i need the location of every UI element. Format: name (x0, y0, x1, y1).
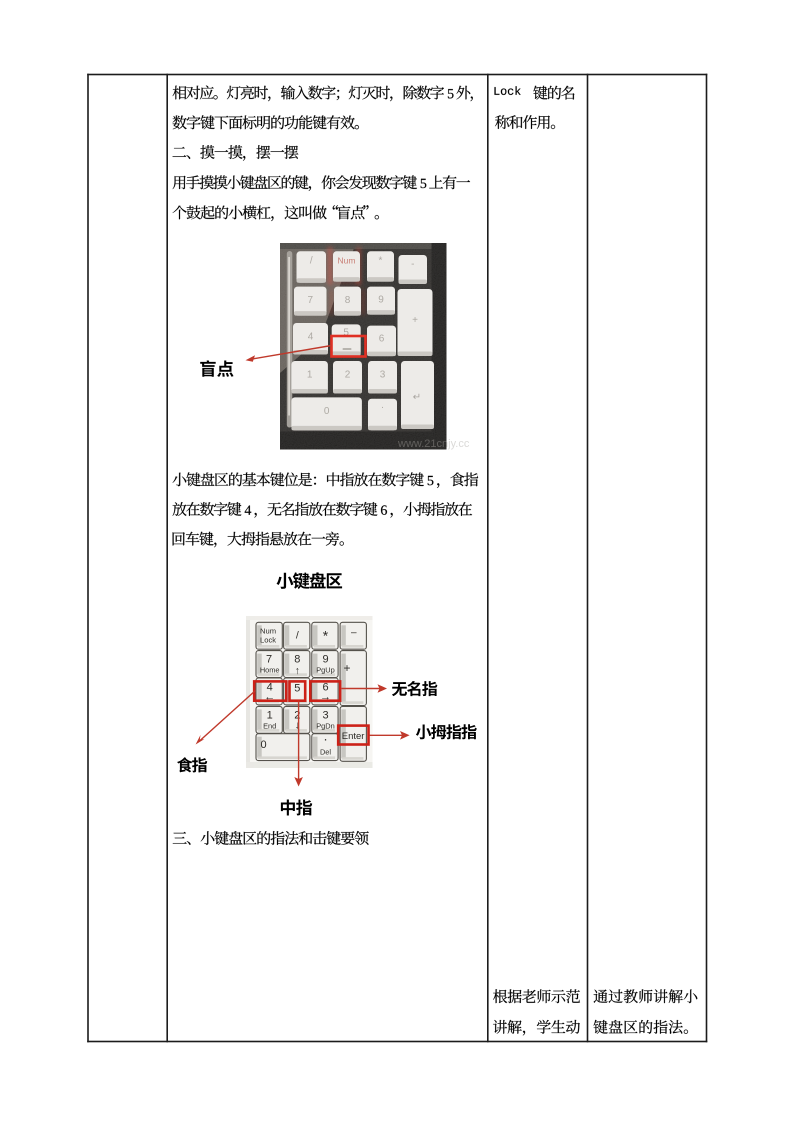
svg-text:1: 1 (307, 370, 313, 381)
svg-text:/: / (310, 255, 313, 266)
svg-text:PgDn: PgDn (316, 721, 335, 730)
svg-text:+: + (343, 661, 350, 675)
svg-text:1: 1 (267, 709, 273, 721)
svg-text:Lock: Lock (260, 635, 276, 644)
svg-text:/: / (296, 629, 299, 641)
svg-text:7: 7 (266, 654, 272, 666)
svg-text:↑: ↑ (295, 665, 300, 677)
svg-text:·: · (323, 732, 327, 747)
svg-text:3: 3 (322, 709, 328, 721)
svg-text:2: 2 (345, 370, 351, 381)
svg-text:9: 9 (322, 654, 328, 666)
svg-text:–: – (351, 627, 357, 638)
svg-text:Del: Del (320, 748, 331, 757)
svg-text:6: 6 (379, 334, 385, 345)
svg-text:3: 3 (380, 370, 386, 381)
svg-text:5: 5 (294, 683, 300, 695)
svg-text:7: 7 (307, 295, 313, 306)
svg-text:9: 9 (378, 295, 384, 306)
svg-text:8: 8 (294, 654, 300, 666)
svg-text:0: 0 (324, 406, 330, 417)
svg-text:*: * (323, 627, 329, 643)
svg-text:www.21cnjy.cc: www.21cnjy.cc (397, 438, 470, 450)
svg-text:+: + (412, 315, 418, 326)
svg-text:Num: Num (260, 626, 276, 635)
svg-text:4: 4 (308, 332, 314, 343)
svg-text:8: 8 (345, 295, 351, 306)
svg-text:Enter: Enter (342, 731, 365, 742)
svg-text:End: End (263, 721, 276, 730)
svg-text:Num: Num (338, 255, 356, 265)
svg-text:Home: Home (260, 666, 280, 675)
svg-text:PgUp: PgUp (316, 666, 335, 675)
svg-text:·: · (381, 402, 384, 413)
svg-text:↵: ↵ (413, 392, 421, 403)
svg-text:*: * (379, 255, 383, 266)
svg-text:0: 0 (260, 739, 266, 751)
svg-text:-: - (411, 259, 414, 270)
